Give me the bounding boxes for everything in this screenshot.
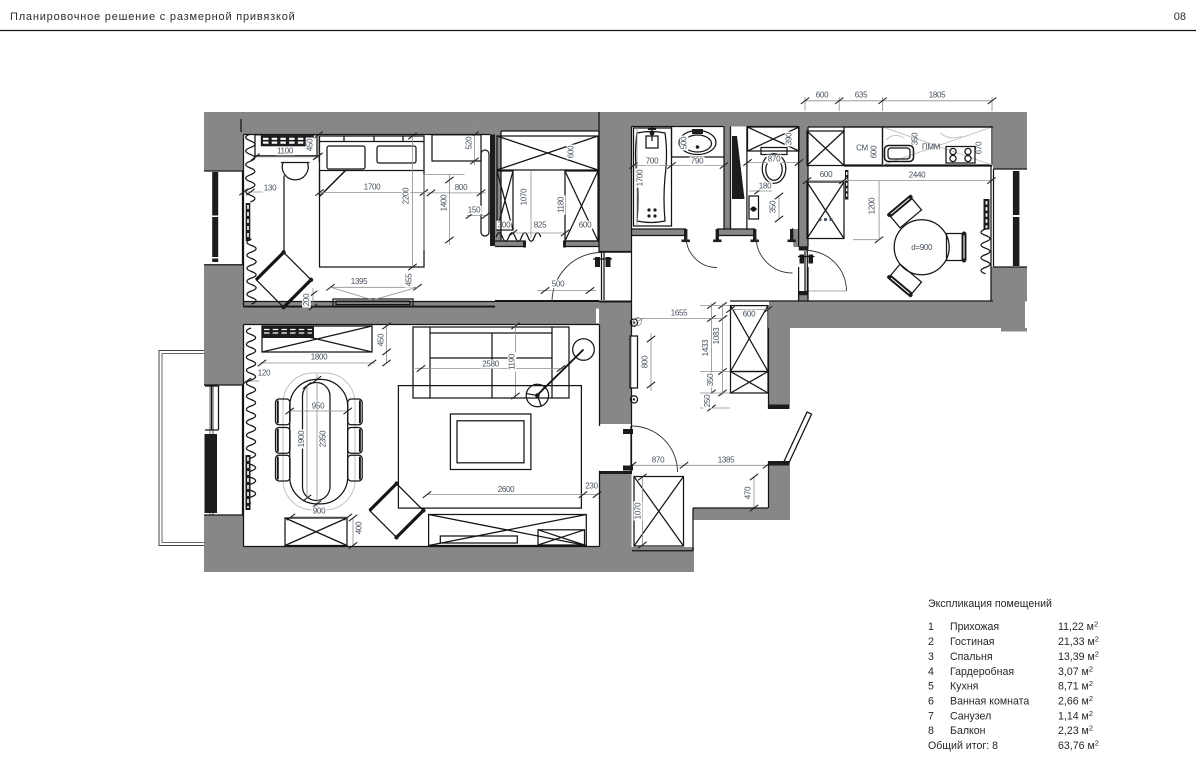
svg-text:950: 950 (312, 402, 325, 411)
svg-text:825: 825 (534, 221, 547, 230)
svg-text:300: 300 (498, 221, 511, 230)
svg-text:1800: 1800 (311, 353, 328, 362)
svg-text:5: 5 (928, 681, 934, 693)
svg-text:13,39 м2: 13,39 м2 (1058, 649, 1099, 663)
svg-text:1395: 1395 (351, 277, 368, 286)
svg-text:Гардеробная: Гардеробная (950, 666, 1014, 678)
svg-text:600: 600 (870, 145, 879, 158)
svg-text:3,07 м2: 3,07 м2 (1058, 664, 1093, 678)
svg-text:600: 600 (820, 170, 833, 179)
svg-text:d=900: d=900 (911, 243, 933, 252)
svg-text:350: 350 (769, 200, 778, 213)
svg-text:ПММ: ПММ (922, 143, 941, 152)
svg-text:СМ: СМ (856, 144, 868, 153)
svg-text:350: 350 (911, 132, 920, 145)
svg-text:2,66 м2: 2,66 м2 (1058, 694, 1093, 708)
svg-text:520: 520 (465, 136, 474, 149)
svg-text:Общий итог: 8: Общий итог: 8 (928, 740, 998, 752)
svg-text:Спальня: Спальня (950, 651, 993, 663)
svg-text:Прихожая: Прихожая (950, 621, 999, 633)
svg-text:11,22 м2: 11,22 м2 (1058, 620, 1098, 634)
svg-text:2: 2 (928, 636, 934, 648)
svg-text:Балкон: Балкон (950, 725, 986, 737)
svg-text:800: 800 (641, 355, 650, 368)
svg-text:900: 900 (313, 507, 326, 516)
svg-text:600: 600 (567, 145, 576, 158)
svg-text:1: 1 (928, 621, 934, 633)
svg-text:3: 3 (928, 651, 934, 663)
svg-text:1083: 1083 (712, 327, 721, 344)
svg-text:1700: 1700 (364, 183, 381, 192)
svg-text:4: 4 (928, 666, 934, 678)
svg-text:Кухня: Кухня (950, 681, 978, 693)
svg-text:790: 790 (691, 157, 704, 166)
svg-text:470: 470 (744, 486, 753, 499)
svg-text:700: 700 (646, 157, 659, 166)
svg-text:600: 600 (816, 91, 829, 100)
svg-text:1433: 1433 (701, 339, 710, 356)
svg-text:1180: 1180 (557, 196, 566, 213)
svg-text:Планировочное решение с размер: Планировочное решение с размерной привяз… (10, 11, 296, 23)
svg-text:2350: 2350 (318, 430, 327, 447)
svg-text:1805: 1805 (929, 91, 946, 100)
svg-text:500: 500 (552, 280, 565, 289)
svg-text:250: 250 (703, 394, 712, 407)
svg-text:1400: 1400 (440, 194, 449, 211)
svg-text:500: 500 (680, 136, 689, 149)
svg-text:2200: 2200 (402, 187, 411, 204)
svg-text:1,14 м2: 1,14 м2 (1058, 709, 1093, 723)
svg-text:870: 870 (652, 456, 665, 465)
svg-text:Ванная комната: Ванная комната (950, 696, 1029, 708)
svg-text:63,76 м2: 63,76 м2 (1058, 739, 1099, 753)
svg-text:180: 180 (759, 182, 772, 191)
svg-text:600: 600 (579, 221, 592, 230)
svg-text:1100: 1100 (277, 147, 294, 156)
svg-text:600: 600 (743, 310, 756, 319)
svg-text:08: 08 (1174, 11, 1186, 23)
svg-text:635: 635 (855, 91, 868, 100)
svg-text:Гостиная: Гостиная (950, 636, 994, 648)
svg-text:455: 455 (405, 273, 414, 286)
svg-text:7: 7 (928, 710, 934, 722)
svg-text:120: 120 (258, 369, 271, 378)
svg-text:1200: 1200 (868, 197, 877, 214)
svg-text:870: 870 (768, 155, 781, 164)
svg-text:8,71 м2: 8,71 м2 (1058, 679, 1093, 693)
svg-text:670: 670 (975, 141, 984, 154)
svg-text:6: 6 (928, 696, 934, 708)
svg-text:1070: 1070 (520, 188, 529, 205)
svg-text:Санузел: Санузел (950, 710, 991, 722)
svg-text:21,33 м2: 21,33 м2 (1058, 635, 1099, 649)
svg-text:130: 130 (264, 184, 277, 193)
svg-text:2580: 2580 (482, 360, 499, 369)
svg-text:2600: 2600 (498, 485, 515, 494)
svg-text:Экспликация помещений: Экспликация помещений (928, 598, 1052, 610)
svg-text:1070: 1070 (634, 502, 643, 519)
svg-text:800: 800 (455, 183, 468, 192)
svg-text:200: 200 (302, 293, 311, 306)
svg-text:230: 230 (585, 482, 598, 491)
svg-text:350: 350 (706, 373, 715, 386)
svg-text:1385: 1385 (718, 456, 735, 465)
svg-text:400: 400 (355, 521, 364, 534)
svg-text:8: 8 (928, 725, 934, 737)
svg-text:390: 390 (785, 132, 794, 145)
svg-text:1655: 1655 (671, 309, 688, 318)
svg-text:450: 450 (306, 138, 315, 151)
svg-text:1700: 1700 (636, 169, 645, 186)
svg-text:450: 450 (377, 333, 386, 346)
svg-text:1900: 1900 (297, 430, 306, 447)
svg-text:2440: 2440 (909, 171, 926, 180)
svg-text:2,23 м2: 2,23 м2 (1058, 724, 1093, 738)
svg-text:1190: 1190 (508, 353, 517, 370)
svg-text:150: 150 (468, 206, 481, 215)
